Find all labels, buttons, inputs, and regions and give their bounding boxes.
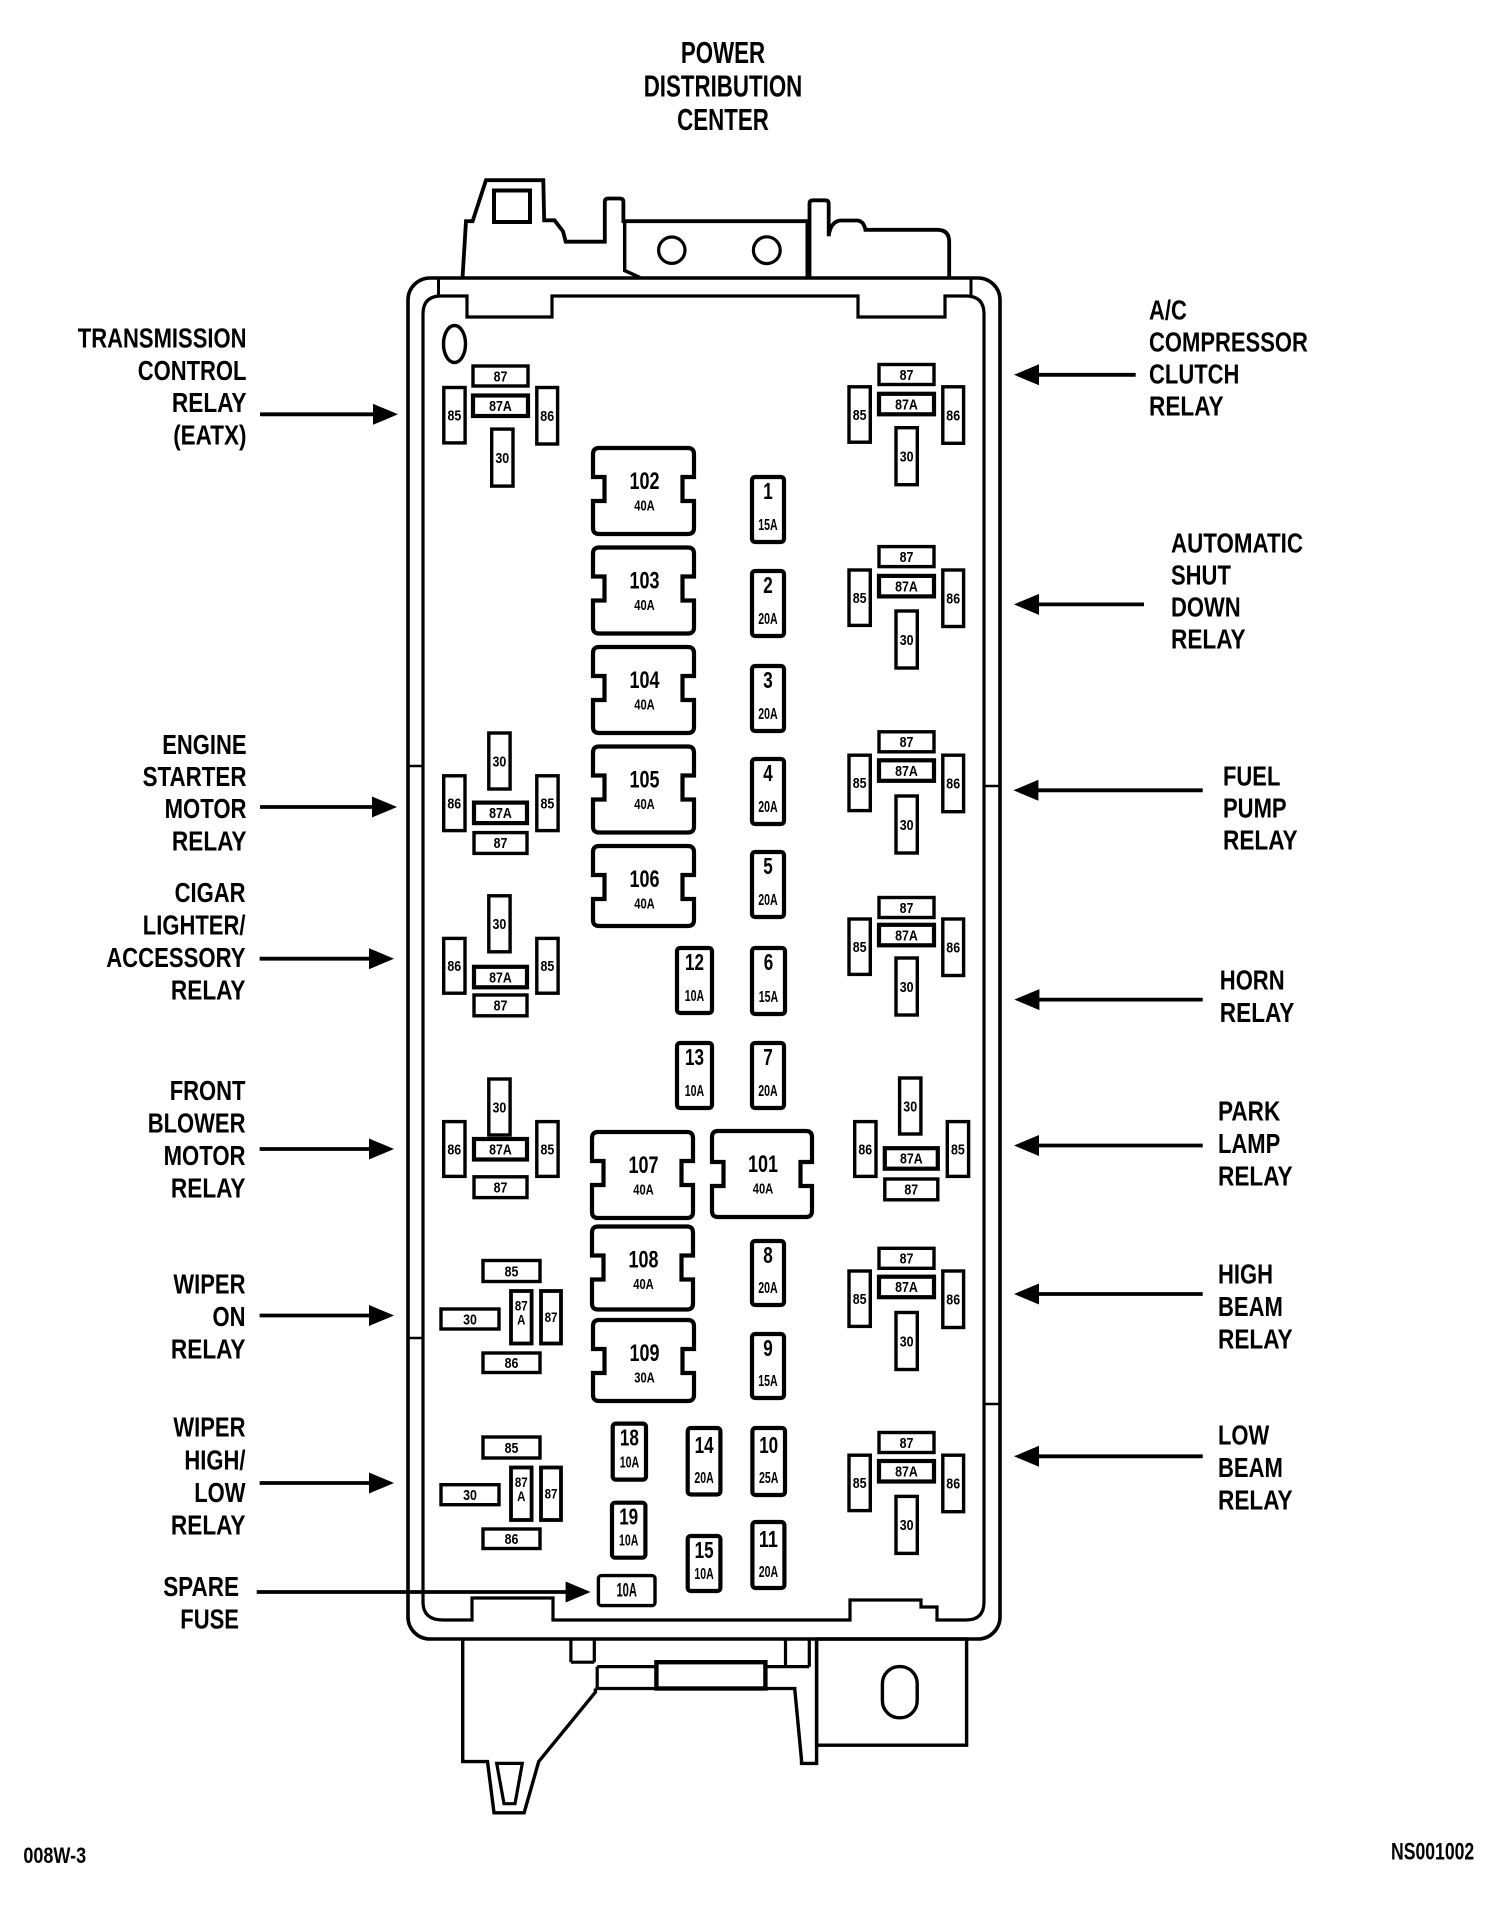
svg-text:RELAY: RELAY [171, 1334, 246, 1365]
svg-text:85: 85 [853, 407, 867, 424]
svg-text:RELAY: RELAY [1149, 391, 1224, 422]
svg-text:86: 86 [447, 796, 461, 813]
svg-text:87A: 87A [489, 1142, 512, 1159]
svg-text:WIPER: WIPER [173, 1412, 245, 1443]
svg-text:25A: 25A [759, 1470, 779, 1487]
svg-text:10A: 10A [694, 1566, 714, 1583]
svg-text:3: 3 [763, 667, 773, 693]
svg-text:86: 86 [447, 1141, 461, 1158]
svg-text:86: 86 [946, 776, 960, 793]
svg-text:HORN: HORN [1220, 965, 1285, 996]
svg-text:RELAY: RELAY [171, 975, 246, 1006]
svg-text:86: 86 [540, 408, 554, 425]
svg-text:87: 87 [494, 1179, 508, 1196]
svg-text:30A: 30A [634, 1370, 655, 1387]
svg-text:TRANSMISSION: TRANSMISSION [78, 323, 247, 354]
svg-text:87A: 87A [895, 396, 918, 413]
svg-text:RELAY: RELAY [172, 387, 247, 418]
svg-text:BEAM: BEAM [1218, 1452, 1283, 1483]
svg-text:87: 87 [545, 1486, 558, 1502]
svg-text:20A: 20A [758, 706, 778, 723]
svg-text:109: 109 [630, 1340, 660, 1367]
svg-text:14: 14 [695, 1432, 714, 1458]
svg-text:85: 85 [853, 1475, 867, 1492]
svg-text:10A: 10A [620, 1455, 640, 1472]
svg-text:LIGHTER/: LIGHTER/ [143, 910, 246, 941]
svg-text:MOTOR: MOTOR [164, 1140, 246, 1171]
svg-text:FUSE: FUSE [180, 1604, 239, 1635]
svg-text:87A: 87A [489, 398, 512, 415]
svg-text:20A: 20A [758, 799, 778, 816]
svg-text:LOW: LOW [194, 1477, 246, 1508]
svg-text:11: 11 [759, 1526, 778, 1552]
svg-text:30: 30 [900, 1333, 914, 1350]
svg-text:10A: 10A [685, 1083, 705, 1100]
svg-text:CONTROL: CONTROL [138, 355, 247, 386]
svg-text:87: 87 [494, 835, 508, 852]
svg-text:13: 13 [685, 1044, 704, 1070]
svg-text:8: 8 [763, 1242, 773, 1268]
svg-text:107: 107 [629, 1152, 659, 1179]
svg-text:CENTER: CENTER [677, 102, 769, 137]
svg-text:RELAY: RELAY [172, 826, 247, 857]
svg-text:87A: 87A [900, 1151, 923, 1168]
svg-text:85: 85 [853, 775, 867, 792]
svg-text:10: 10 [759, 1432, 778, 1458]
svg-text:RELAY: RELAY [1218, 1485, 1293, 1516]
svg-text:40A: 40A [753, 1181, 774, 1198]
svg-text:87: 87 [494, 368, 508, 385]
svg-text:86: 86 [858, 1141, 872, 1158]
svg-text:87: 87 [900, 734, 914, 751]
svg-text:30: 30 [900, 632, 914, 649]
svg-text:40A: 40A [633, 1276, 654, 1293]
svg-text:20A: 20A [758, 611, 778, 628]
svg-text:87: 87 [545, 1309, 558, 1325]
svg-text:4: 4 [763, 760, 773, 786]
svg-text:87A: 87A [895, 763, 918, 780]
svg-text:20A: 20A [694, 1470, 714, 1487]
svg-text:87: 87 [900, 1251, 914, 1268]
svg-text:30: 30 [493, 1099, 507, 1116]
svg-text:85: 85 [853, 1291, 867, 1308]
svg-text:86: 86 [505, 1355, 519, 1372]
svg-text:40A: 40A [633, 1182, 654, 1199]
svg-text:RELAY: RELAY [171, 1173, 246, 1204]
svg-text:RELAY: RELAY [1218, 1161, 1293, 1192]
svg-text:30: 30 [900, 817, 914, 834]
svg-text:108: 108 [629, 1247, 659, 1274]
svg-text:86: 86 [946, 940, 960, 957]
svg-text:ON: ON [213, 1301, 246, 1332]
svg-text:POWER: POWER [681, 35, 765, 70]
svg-text:BLOWER: BLOWER [148, 1108, 246, 1139]
svg-text:RELAY: RELAY [1220, 997, 1295, 1028]
svg-text:ACCESSORY: ACCESSORY [106, 942, 246, 973]
svg-text:STARTER: STARTER [143, 761, 247, 792]
svg-text:85: 85 [505, 1263, 519, 1280]
svg-text:85: 85 [541, 796, 555, 813]
svg-text:FUEL: FUEL [1223, 761, 1280, 792]
svg-text:40A: 40A [634, 597, 655, 614]
svg-text:HIGH: HIGH [1218, 1259, 1273, 1290]
svg-text:85: 85 [505, 1440, 519, 1457]
svg-text:LOW: LOW [1218, 1420, 1270, 1451]
svg-text:LAMP: LAMP [1218, 1128, 1280, 1159]
svg-text:WIPER: WIPER [173, 1269, 245, 1300]
svg-text:FRONT: FRONT [170, 1075, 246, 1106]
svg-text:RELAY: RELAY [1223, 825, 1298, 856]
svg-text:101: 101 [748, 1151, 778, 1178]
svg-text:87: 87 [904, 1182, 918, 1199]
svg-text:87: 87 [494, 998, 508, 1015]
svg-text:40A: 40A [634, 796, 655, 813]
svg-text:40A: 40A [634, 896, 655, 913]
svg-text:86: 86 [505, 1531, 519, 1548]
svg-text:30: 30 [495, 450, 509, 467]
svg-text:85: 85 [541, 1141, 555, 1158]
svg-text:15A: 15A [758, 1373, 778, 1390]
svg-text:HIGH/: HIGH/ [184, 1445, 245, 1476]
svg-text:87A: 87A [895, 1464, 918, 1481]
svg-text:85: 85 [853, 590, 867, 607]
svg-text:102: 102 [630, 468, 660, 495]
svg-text:SPARE: SPARE [163, 1571, 239, 1602]
svg-text:87A: 87A [895, 1279, 918, 1296]
svg-text:RELAY: RELAY [1218, 1324, 1293, 1355]
svg-text:COMPRESSOR: COMPRESSOR [1149, 327, 1308, 358]
svg-text:30: 30 [900, 979, 914, 996]
svg-text:RELAY: RELAY [171, 1510, 246, 1541]
svg-text:30: 30 [900, 1517, 914, 1534]
svg-text:DISTRIBUTION: DISTRIBUTION [644, 69, 803, 104]
svg-text:87: 87 [900, 900, 914, 917]
svg-text:86: 86 [946, 407, 960, 424]
svg-text:9: 9 [763, 1335, 773, 1361]
svg-text:5: 5 [763, 853, 773, 879]
svg-text:12: 12 [685, 949, 704, 975]
svg-text:105: 105 [630, 767, 660, 794]
svg-text:CIGAR: CIGAR [175, 877, 246, 908]
svg-text:6: 6 [764, 949, 774, 975]
svg-text:30: 30 [463, 1311, 477, 1328]
svg-text:86: 86 [946, 1292, 960, 1309]
svg-text:15A: 15A [759, 989, 779, 1006]
svg-text:15: 15 [695, 1537, 714, 1563]
svg-text:RELAY: RELAY [1171, 624, 1246, 655]
svg-text:87: 87 [900, 1435, 914, 1452]
svg-text:A: A [517, 1488, 525, 1504]
svg-text:40A: 40A [634, 498, 655, 515]
svg-text:20A: 20A [759, 1564, 779, 1581]
svg-text:40A: 40A [634, 697, 655, 714]
svg-text:PARK: PARK [1218, 1096, 1280, 1127]
svg-text:NS001002: NS001002 [1391, 1839, 1474, 1866]
svg-text:30: 30 [463, 1487, 477, 1504]
svg-text:2: 2 [763, 572, 773, 598]
svg-text:7: 7 [763, 1044, 773, 1070]
svg-text:10A: 10A [685, 988, 705, 1005]
svg-text:008W-3: 008W-3 [23, 1843, 86, 1868]
svg-text:87: 87 [900, 549, 914, 566]
svg-text:19: 19 [619, 1504, 638, 1530]
svg-text:AUTOMATIC: AUTOMATIC [1171, 528, 1303, 559]
svg-text:87A: 87A [489, 969, 512, 986]
svg-text:85: 85 [541, 958, 555, 975]
svg-text:87A: 87A [895, 578, 918, 595]
svg-text:86: 86 [447, 958, 461, 975]
svg-text:106: 106 [630, 866, 660, 893]
svg-text:10A: 10A [619, 1533, 639, 1550]
svg-text:ENGINE: ENGINE [162, 729, 246, 760]
svg-text:30: 30 [493, 753, 507, 770]
svg-text:MOTOR: MOTOR [165, 793, 247, 824]
svg-text:85: 85 [448, 408, 462, 425]
svg-text:30: 30 [900, 449, 914, 466]
svg-text:87A: 87A [489, 805, 512, 822]
svg-text:(EATX): (EATX) [173, 420, 246, 451]
svg-text:DOWN: DOWN [1171, 592, 1241, 623]
svg-text:30: 30 [903, 1098, 917, 1115]
svg-text:18: 18 [620, 1425, 639, 1451]
svg-text:A: A [517, 1312, 525, 1328]
svg-text:10A: 10A [617, 1581, 638, 1602]
svg-text:85: 85 [853, 939, 867, 956]
svg-text:104: 104 [630, 667, 660, 694]
svg-text:86: 86 [946, 591, 960, 608]
svg-text:103: 103 [630, 568, 660, 595]
svg-text:1: 1 [763, 478, 773, 504]
svg-text:PUMP: PUMP [1223, 793, 1287, 824]
svg-text:20A: 20A [758, 1280, 778, 1297]
svg-text:20A: 20A [758, 1083, 778, 1100]
svg-text:86: 86 [946, 1476, 960, 1493]
svg-text:SHUT: SHUT [1171, 560, 1231, 591]
svg-text:30: 30 [493, 916, 507, 933]
svg-text:A/C: A/C [1149, 295, 1187, 326]
svg-text:15A: 15A [758, 517, 778, 534]
svg-text:85: 85 [951, 1141, 965, 1158]
svg-text:20A: 20A [758, 892, 778, 909]
svg-text:BEAM: BEAM [1218, 1291, 1283, 1322]
svg-text:87A: 87A [895, 927, 918, 944]
svg-text:CLUTCH: CLUTCH [1149, 359, 1239, 390]
svg-text:87: 87 [900, 367, 914, 384]
